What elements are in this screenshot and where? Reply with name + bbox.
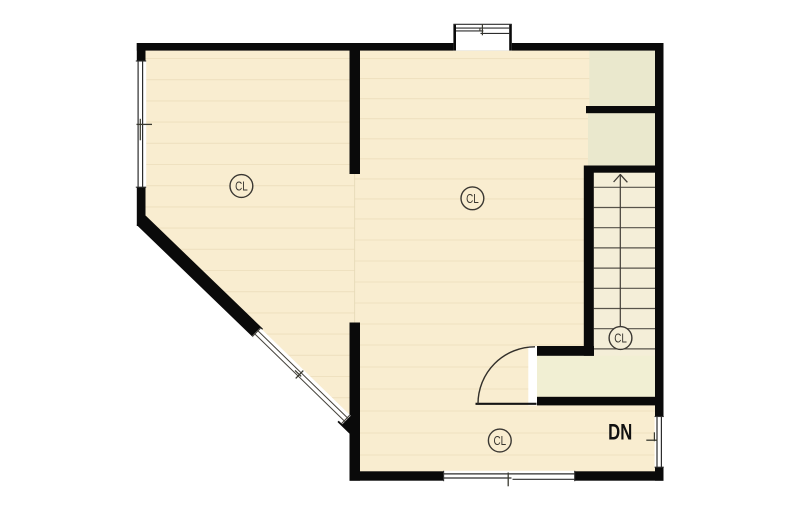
svg-text:CL: CL: [466, 193, 479, 207]
svg-text:DN: DN: [608, 420, 632, 445]
svg-text:CL: CL: [235, 180, 248, 194]
svg-text:CL: CL: [493, 435, 506, 449]
svg-text:CL: CL: [614, 332, 627, 346]
